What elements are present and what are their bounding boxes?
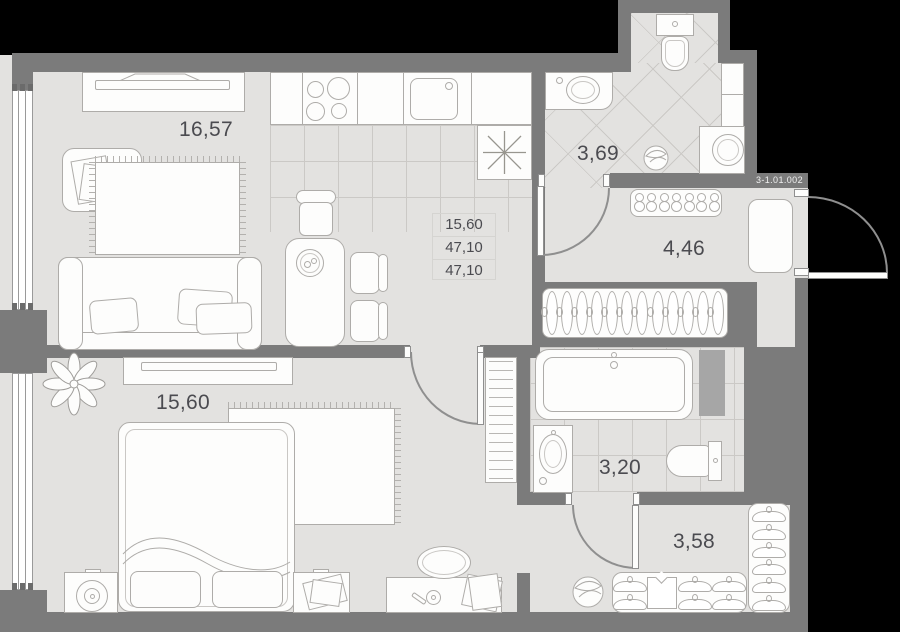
hook-icon (634, 193, 644, 213)
chair-seat (350, 252, 380, 294)
shelf-divider (721, 94, 744, 95)
radiator-fins (489, 361, 513, 479)
hook-icon (696, 193, 706, 213)
plant-icon (570, 574, 606, 610)
wall-bottom (12, 612, 808, 632)
drain-icon (611, 352, 617, 358)
hanger-icon (712, 291, 724, 335)
room-label-hallway-entry: 4,46 (639, 237, 729, 261)
hanger-icon (752, 564, 786, 575)
hanger-icon (678, 599, 712, 610)
hanger-icon (752, 511, 786, 522)
rug-fringe (240, 162, 246, 255)
sink-oval-inner (544, 440, 562, 468)
hanger-icon (752, 529, 786, 540)
wall-jut-top (618, 0, 730, 13)
faucet-icon (551, 430, 556, 435)
faucet-icon (445, 82, 453, 90)
book-icon (309, 579, 342, 607)
hanger-stack (613, 574, 647, 612)
hook-icon (659, 193, 669, 213)
hook-icon (684, 193, 694, 213)
hook-icon (709, 193, 719, 213)
light-asterisk-icon (483, 131, 526, 174)
burner-icon (327, 77, 350, 100)
desk-lamp-dot (431, 595, 436, 600)
bed-pillow (130, 571, 201, 608)
pillar-mid-left (0, 310, 47, 373)
toilet-bowl-icon (666, 445, 710, 477)
duct-block (699, 350, 725, 416)
wardrobe-shelf-right (748, 503, 790, 613)
doormat (748, 199, 793, 273)
hanger-icon (712, 581, 746, 592)
fruit-icon (311, 258, 317, 264)
wall-bathroom-top-right (744, 63, 757, 173)
door-leaf-bathroom-bottom (632, 505, 639, 569)
door-jamb (794, 189, 809, 197)
washer-drum-inner (717, 139, 739, 161)
sink-oval-inner (571, 81, 595, 99)
drain-icon (539, 477, 547, 485)
wall-bathroom-bottom-left (517, 492, 572, 505)
rug-living (95, 162, 240, 255)
wall-stub-358 (517, 573, 530, 612)
fruit-icon (304, 261, 311, 268)
hanger-icon (752, 582, 786, 593)
desk-chair-inner (422, 550, 466, 575)
hanger-stack (712, 574, 746, 612)
faucet-icon (556, 77, 563, 84)
room-label-hallway-wardrobe: 3,58 (649, 530, 739, 554)
window-bedroom (12, 373, 33, 590)
hook-icon (646, 193, 656, 213)
hanger-stack (678, 574, 712, 612)
flower-plant-icon (46, 354, 102, 414)
wall-top (12, 53, 631, 72)
chair-seat (299, 202, 333, 236)
open-book-icon (468, 573, 502, 611)
burner-icon (331, 103, 347, 119)
sofa-armrest (58, 257, 83, 350)
hanger-icon (678, 581, 712, 592)
bed-pillow (212, 571, 283, 608)
wall-step (718, 50, 757, 63)
wardrobe-rail (542, 288, 728, 338)
toilet-bowl-inner (665, 40, 685, 67)
wall-jut-left (618, 13, 631, 53)
nightstand-handle (85, 569, 101, 573)
wall-jut-right (718, 13, 730, 50)
hanger-icon (613, 599, 647, 610)
pillar-bottom-left (0, 590, 47, 632)
room-label-bathroom-top: 3,69 (553, 142, 643, 166)
window-living (12, 90, 33, 310)
chair-seat (350, 300, 380, 342)
folded-shirt-icon (647, 577, 677, 609)
hook-icon (671, 193, 681, 213)
info-row: 47,10 (433, 236, 495, 259)
wall-right-358 (790, 505, 808, 612)
hanger-icon (752, 600, 786, 611)
wardrobe-shelf-bottom (612, 572, 747, 613)
kitchen-cabinet (357, 72, 404, 125)
room-label-living-kitchen: 16,57 (161, 118, 251, 142)
wall-shaft (744, 347, 808, 505)
hanger-icon (613, 581, 647, 592)
door-swing-entrance (808, 196, 888, 273)
door-leaf-bathroom-top (537, 186, 544, 256)
window-frame-caps-bottom (12, 583, 33, 590)
door-leaf-entrance (808, 272, 888, 279)
room-label-bedroom: 15,60 (138, 391, 228, 415)
door-leaf-bedroom (477, 352, 484, 425)
tv-screen-icon (95, 80, 230, 90)
hanger-icon (752, 547, 786, 558)
window-frame-caps-top (12, 84, 33, 91)
info-row: 47,10 (433, 259, 495, 282)
chair-back (378, 254, 388, 292)
door-jamb (565, 493, 572, 505)
sofa-pillow (195, 302, 252, 335)
wall-entry-right (795, 278, 808, 347)
faucet-icon (610, 361, 618, 369)
wall-bedroom-bath-divider (517, 345, 530, 503)
coat-hook-panel (630, 189, 722, 217)
plant-icon (642, 144, 670, 172)
door-jamb (794, 268, 809, 276)
toilet-button-icon (713, 458, 718, 463)
info-row: 15,60 (433, 214, 495, 236)
unit-number-label: 3-1.01.002 (700, 175, 803, 185)
chair-back (378, 302, 388, 340)
kitchen-cabinet (471, 72, 532, 125)
rug-fringe (395, 408, 401, 525)
area-info-box: 15,60 47,10 47,10 (432, 213, 496, 280)
toilet-button-icon (672, 21, 678, 27)
door-jamb (603, 174, 610, 187)
window-frame-caps-mid (12, 303, 33, 310)
burner-icon (307, 81, 324, 98)
sofa-pillow (89, 297, 140, 335)
speaker-icon-dot (90, 594, 95, 599)
floor-plan: 15,60 47,10 47,10 (0, 0, 900, 632)
nightstand-handle (313, 569, 329, 573)
room-label-bathroom-bottom: 3,20 (575, 456, 665, 480)
kitchen-cabinet (270, 72, 303, 125)
tv-screen-icon (141, 362, 277, 371)
hanger-icon (712, 599, 746, 610)
door-jamb (633, 493, 640, 505)
burner-icon (306, 102, 325, 121)
shelf-unit (721, 63, 744, 127)
